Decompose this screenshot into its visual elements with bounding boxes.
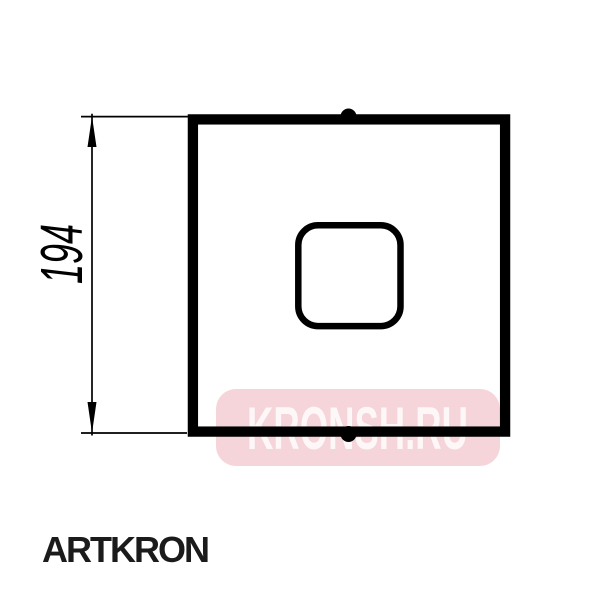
svg-text:194: 194 — [29, 224, 96, 284]
